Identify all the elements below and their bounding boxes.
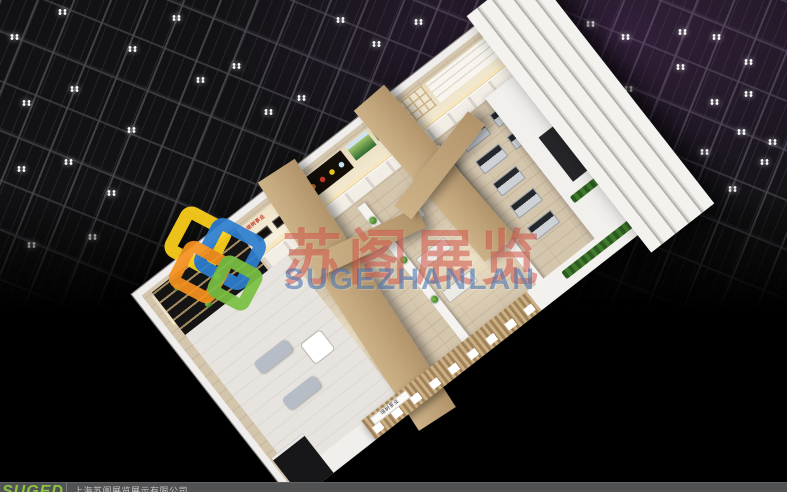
exhibition-render-scene: 培树茶业 (0, 0, 787, 492)
watermark-title-en: SUGEZHANLAN (284, 263, 536, 297)
ceiling-light (621, 34, 630, 40)
footer-separator (66, 483, 67, 492)
ceiling-light (196, 77, 205, 83)
ceiling-light (172, 15, 181, 21)
footer-logo-text: SUGED (2, 483, 64, 492)
ceiling-light (264, 109, 273, 115)
ceiling-light (700, 149, 709, 155)
ceiling-light (127, 127, 136, 133)
ceiling-light (17, 166, 26, 172)
ceiling-light (586, 21, 595, 27)
ceiling-light (744, 91, 753, 97)
ceiling-light (768, 139, 777, 145)
ceiling-light (27, 242, 36, 248)
ceiling-light (128, 46, 137, 52)
ceiling-light (372, 41, 381, 47)
footer-company-name: 上海苏阁展览展示有限公司 (74, 484, 188, 492)
ceiling-light (297, 95, 306, 101)
ceiling-light (414, 19, 423, 25)
ceiling-light (107, 190, 116, 196)
ceiling-light (728, 186, 737, 192)
ceiling-light (710, 99, 719, 105)
ceiling-light (678, 29, 687, 35)
ceiling-light (676, 64, 685, 70)
ceiling-light (64, 159, 73, 165)
ceiling-light (88, 234, 97, 240)
ceiling-light (744, 59, 753, 65)
ceiling-light (336, 17, 345, 23)
watermark-logo (168, 212, 268, 312)
ceiling-light (712, 34, 721, 40)
ceiling-light (232, 63, 241, 69)
ceiling-light (70, 86, 79, 92)
ceiling-light (760, 159, 769, 165)
ceiling-light (737, 129, 746, 135)
ceiling-light (10, 34, 19, 40)
ceiling-light (58, 9, 67, 15)
ceiling-light (22, 100, 31, 106)
